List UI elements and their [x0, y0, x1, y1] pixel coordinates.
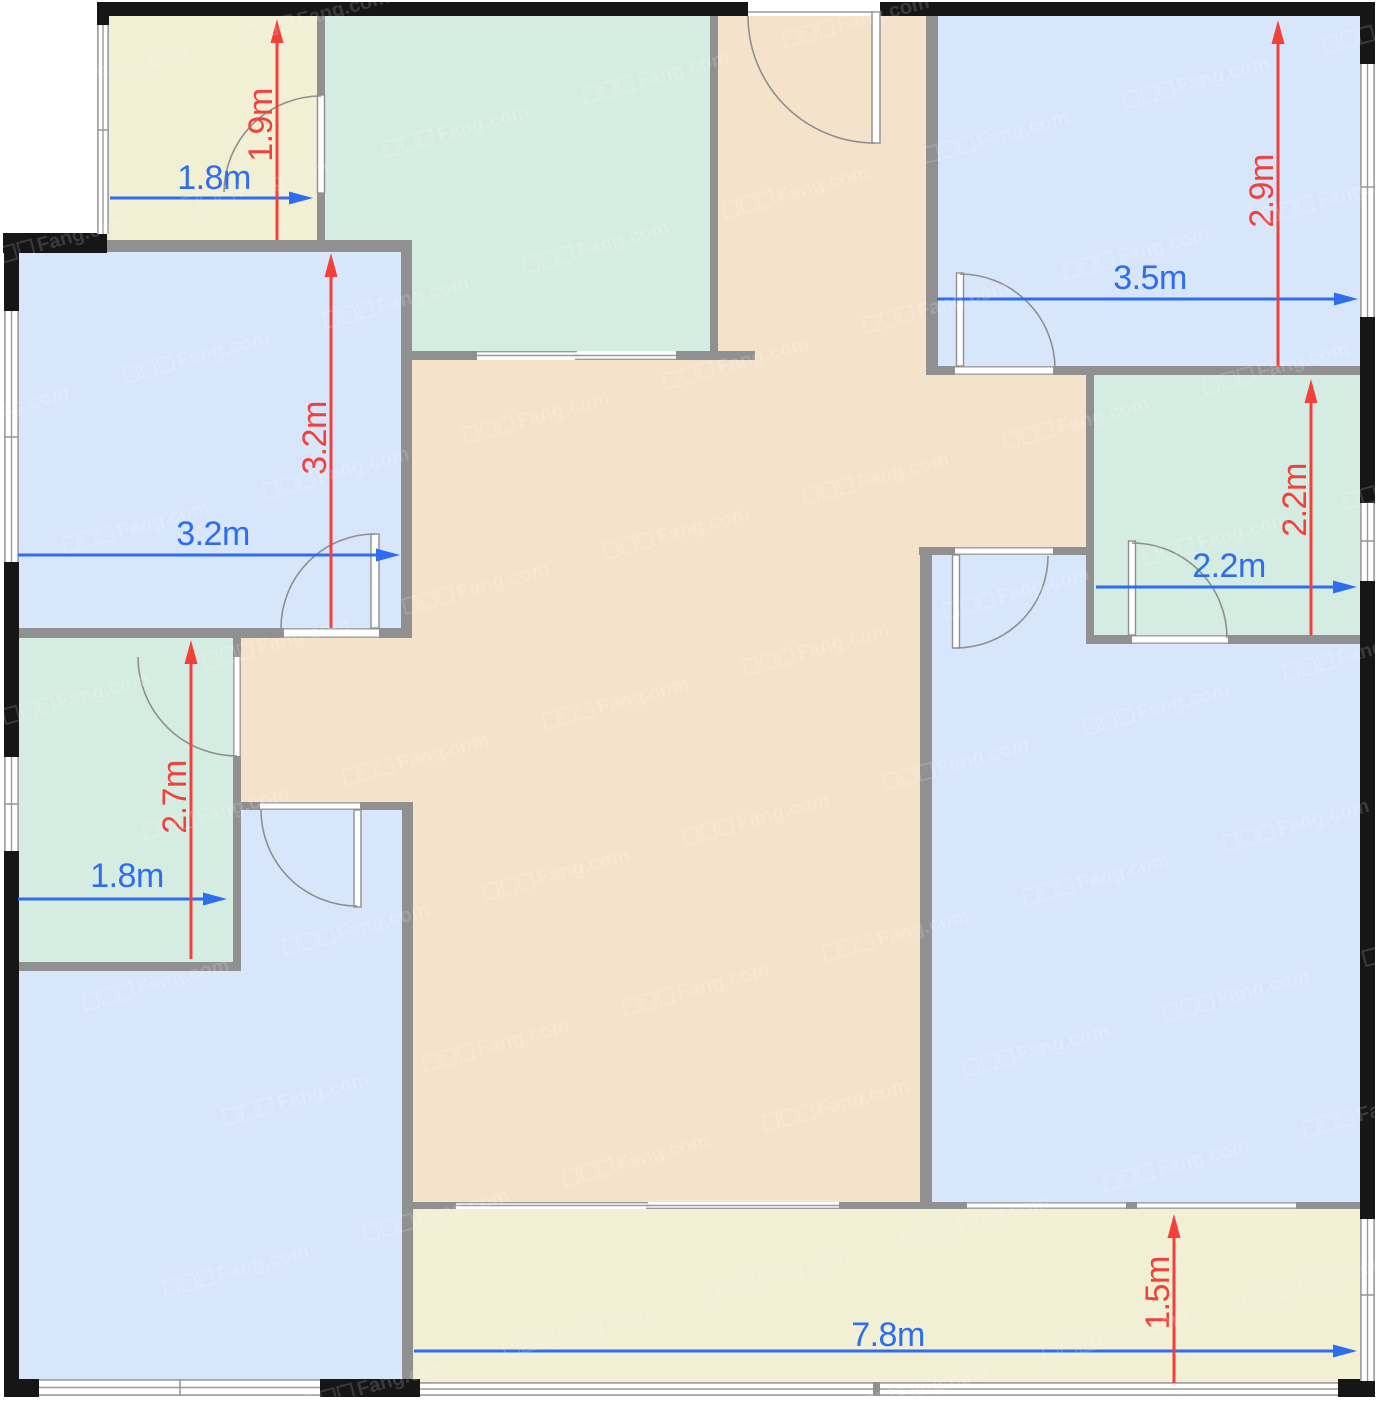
svg-text:2.9m: 2.9m	[1243, 154, 1281, 228]
svg-text:1.9m: 1.9m	[242, 88, 280, 162]
svg-text:1.8m: 1.8m	[90, 857, 164, 895]
svg-text:7.8m: 7.8m	[851, 1316, 925, 1354]
